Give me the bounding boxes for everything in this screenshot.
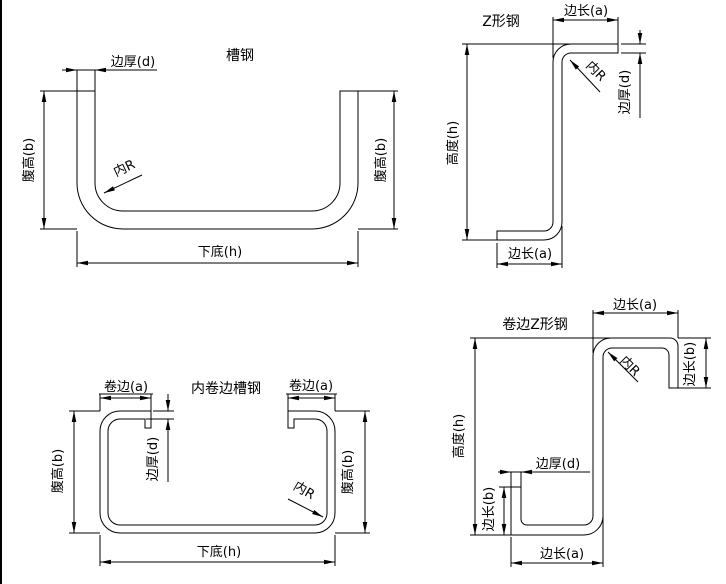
z-section-diagram: Z形钢 边长(a) 边厚(d) 内R 高度(h) 边长(a) [445, 4, 646, 268]
lipped-z-diagram: 卷边Z形钢 边长(a) 边长(b) 内R 高度(h) 边厚(d) 边长(b) 边… [451, 298, 711, 567]
channel-radius-label: 内R [111, 156, 138, 180]
lipped-channel-title: 内卷边槽钢 [191, 381, 261, 397]
lipped-channel-web-left-label: 腹高(b) [50, 449, 66, 493]
z-section-radius-label: 内R [582, 58, 609, 85]
channel-steel-diagram: 槽钢 边厚(d) 腹高(b) 腹高(b) 内R 下底(h) [21, 48, 398, 267]
z-section-thickness-label: 边厚(d) [618, 70, 633, 114]
lipped-z-title: 卷边Z形钢 [502, 317, 568, 333]
lipped-channel-lip-left-label: 卷边(a) [104, 379, 148, 395]
lipped-channel-lip-right-label: 卷边(a) [289, 378, 333, 394]
lipped-z-lip-right-label: 边长(b) [683, 342, 698, 386]
channel-web-right-label: 腹高(b) [373, 138, 389, 182]
z-section-flange-top-label: 边长(a) [564, 4, 608, 19]
lipped-z-lip-left-label: 边长(b) [482, 487, 497, 531]
channel-bottom-label: 下底(h) [198, 244, 242, 260]
lipped-channel-profile-shape [100, 411, 335, 533]
lipped-channel-web-right-label: 腹高(b) [340, 450, 356, 494]
lipped-channel-bottom-label: 下底(h) [197, 544, 241, 560]
channel-thickness-label: 边厚(d) [111, 55, 155, 70]
z-section-height-label: 高度(h) [445, 121, 461, 165]
z-section-flange-bottom-label: 边长(a) [508, 247, 552, 262]
lipped-z-height-label: 高度(h) [451, 414, 467, 458]
steel-profiles-drawing: 槽钢 边厚(d) 腹高(b) 腹高(b) 内R 下底(h) [0, 0, 726, 584]
lipped-z-profile-shape [511, 338, 678, 535]
z-section-title: Z形钢 [482, 14, 520, 30]
lipped-channel-diagram: 内卷边槽钢 卷边(a) 卷边(a) 边厚(d) 腹高(b) 腹高(b) 内R 下… [50, 378, 370, 566]
lipped-z-flange-top-label: 边长(a) [613, 298, 657, 313]
drawing-canvas: 槽钢 边厚(d) 腹高(b) 腹高(b) 内R 下底(h) [0, 0, 726, 584]
channel-profile-shape [77, 91, 358, 229]
lipped-z-radius-label: 内R [616, 353, 643, 380]
channel-title: 槽钢 [226, 48, 254, 64]
lipped-channel-radius-label: 内R [290, 478, 317, 503]
channel-web-left-label: 腹高(b) [21, 138, 37, 182]
lipped-z-flange-bottom-label: 边长(a) [540, 547, 584, 562]
lipped-channel-thickness-label: 边厚(d) [146, 437, 161, 481]
lipped-z-thickness-label: 边厚(d) [536, 457, 580, 472]
